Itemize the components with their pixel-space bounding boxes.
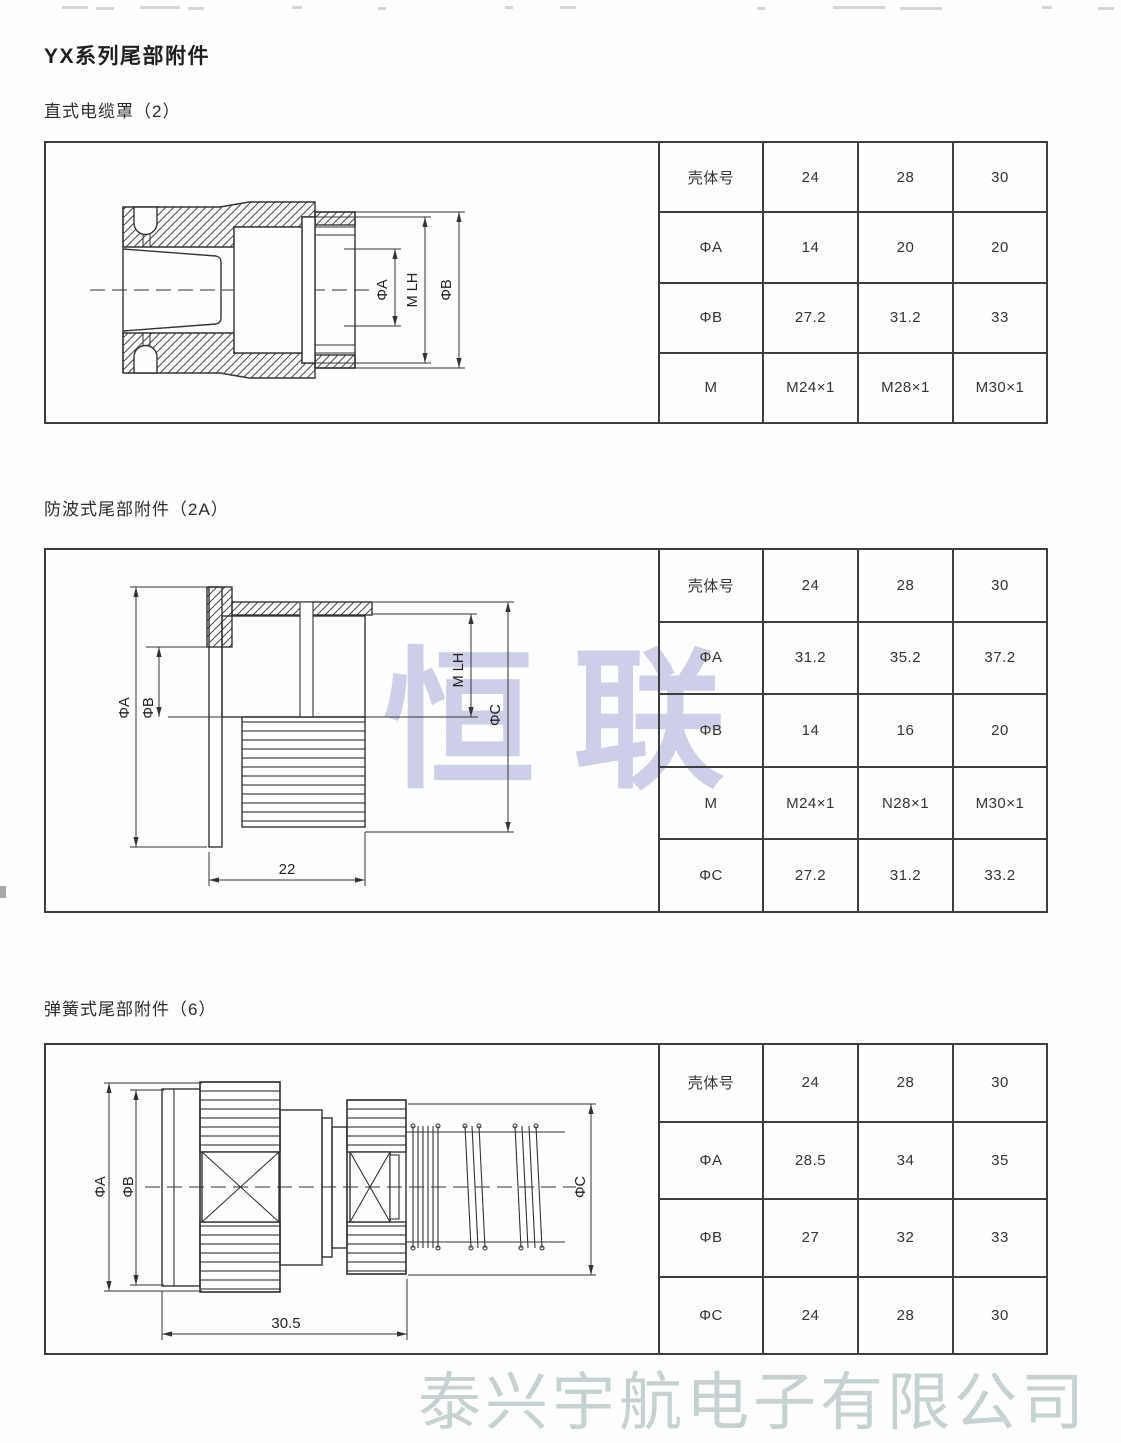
part-cross-section [168,587,478,847]
table-cell: 24 [764,1278,859,1356]
table-cell: 30 [954,550,1048,623]
table-cell: 32 [859,1200,954,1278]
section2-heading: 防波式尾部附件（2A） [44,495,229,520]
table-cell: 31.2 [859,284,954,354]
table-cell: 30 [954,143,1048,213]
scan-artifact [900,7,942,10]
scan-artifact [378,7,386,10]
scan-artifact [833,6,885,9]
anti-wave-accessory-drawing: ΦA ΦB M LH ΦC 22 [44,548,660,913]
table-cell: 14 [764,213,859,283]
row-header: ΦA [660,1123,764,1201]
table-cell: 27.2 [764,284,859,354]
table-cell: 37.2 [954,623,1048,696]
table-cell: 20 [859,213,954,283]
scanned-datasheet-page: { "page": { "title": "YX系列尾部附件", "center… [0,0,1121,1424]
section3: ΦA ΦB ΦC 30.5 壳体号 24 28 30 ΦA 28.5 34 35… [44,1043,1048,1355]
dim-label-phiC: ΦC [573,1176,589,1198]
anti-wave-accessory-svg: ΦA ΦB M LH ΦC 22 [46,550,658,911]
table-cell: 28 [859,143,954,213]
ring-groove [302,217,315,363]
row-header: 壳体号 [660,1045,764,1123]
dim-label-mlh: M LH [451,653,467,688]
scan-artifact [1098,7,1114,10]
table-cell: M28×1 [859,354,954,424]
table-cell: 14 [764,695,859,768]
slot [300,602,313,717]
coil-loops-top [411,1124,538,1128]
table-cell: 24 [764,1045,859,1123]
rear-knurl-top [347,1100,406,1152]
scan-artifact [1042,6,1052,9]
table-cell: N28×1 [859,768,954,841]
threaded-section [242,717,365,827]
scan-artifact [0,886,6,898]
scan-artifact [140,6,180,9]
table-cell: 28 [859,1045,954,1123]
dim-label-phiB: ΦB [439,279,455,300]
row-header: M [660,354,764,424]
spring-accessory-svg: ΦA ΦB ΦC 30.5 [46,1045,658,1353]
bottom-notch [134,346,157,374]
table-cell: M24×1 [764,768,859,841]
table-cell: 30 [954,1045,1048,1123]
row-header: ΦC [660,840,764,913]
table-cell: M30×1 [954,354,1048,424]
scan-artifact [757,7,765,10]
section1-heading: 直式电缆罩（2） [44,97,180,122]
dim-label-phiA: ΦA [375,279,391,301]
section2: ΦA ΦB M LH ΦC 22 壳体号 24 28 30 ΦA 31.2 35… [44,548,1048,913]
table-cell: 33.2 [954,840,1048,913]
dim-label-phiA: ΦA [117,697,133,719]
inner-chamber [234,227,302,353]
scan-artifact [188,7,204,10]
section2-table: 壳体号 24 28 30 ΦA 31.2 35.2 37.2 ΦB 14 16 … [660,548,1048,913]
table-cell: 33 [954,1200,1048,1278]
table-cell: 28 [859,550,954,623]
straight-cable-cover-drawing: ΦA M LH ΦB [44,141,660,424]
row-header: 壳体号 [660,550,764,623]
table-cell: 31.2 [859,840,954,913]
knurl-bottom [200,1222,280,1292]
knurl-top [200,1082,280,1152]
row-header: ΦA [660,213,764,283]
table-cell: M30×1 [954,768,1048,841]
row-header: M [660,768,764,841]
section3-table: 壳体号 24 28 30 ΦA 28.5 34 35 ΦB 27 32 33 Φ… [660,1043,1048,1355]
dim-label-phiB: ΦB [121,1176,137,1197]
straight-cable-cover-svg: ΦA M LH ΦB [46,143,658,422]
rear-knurl-bottom [347,1222,406,1274]
table-cell: 35 [954,1123,1048,1201]
row-header: ΦB [660,1200,764,1278]
dim-label-phiB: ΦB [141,697,157,718]
bottom-watermark: 泰兴宇航电子有限公司 [418,1352,1088,1443]
table-cell: 24 [764,550,859,623]
table-cell: 16 [859,695,954,768]
scan-artifact [560,6,576,9]
table-cell: 27 [764,1200,859,1278]
row-header: 壳体号 [660,143,764,213]
phiA-extension-lines [344,249,401,326]
table-cell: 31.2 [764,623,859,696]
dim-label-phiC: ΦC [488,704,504,726]
hatched-rim-top [315,212,355,225]
scan-artifact [505,6,513,9]
scan-artifact [62,6,88,9]
section3-heading: 弹簧式尾部附件（6） [44,995,216,1020]
hatched-rim-bottom [315,355,355,368]
dim-label-mlh: M LH [405,273,421,308]
section1-table: 壳体号 24 28 30 ΦA 14 20 20 ΦB 27.2 31.2 33… [660,141,1048,424]
row-header: ΦB [660,284,764,354]
dim-label-phiA: ΦA [93,1176,109,1198]
row-header: ΦB [660,695,764,768]
table-cell: 33 [954,284,1048,354]
spring-accessory-drawing: ΦA ΦB ΦC 30.5 [44,1043,660,1355]
scan-artifact [96,7,114,10]
page-title: YX系列尾部附件 [44,40,210,70]
table-cell: 28 [859,1278,954,1356]
row-header: ΦA [660,623,764,696]
table-cell: 20 [954,695,1048,768]
table-cell: M24×1 [764,354,859,424]
hatched-flange-head [207,587,232,647]
table-cell: 35.2 [859,623,954,696]
table-cell: 30 [954,1278,1048,1356]
row-header: ΦC [660,1278,764,1356]
table-cell: 27.2 [764,840,859,913]
scan-artifact [292,6,302,9]
dim-label-length: 30.5 [271,1315,300,1332]
table-cell: 28.5 [764,1123,859,1201]
body [222,616,365,717]
table-cell: 20 [954,213,1048,283]
top-notch [134,207,157,235]
table-cell: 24 [764,143,859,213]
section1: ΦA M LH ΦB 壳体号 24 28 30 ΦA 14 20 20 ΦB 2… [44,141,1048,424]
table-cell: 34 [859,1123,954,1201]
part-cross-section [90,202,370,378]
dim-label-length: 22 [279,861,296,878]
